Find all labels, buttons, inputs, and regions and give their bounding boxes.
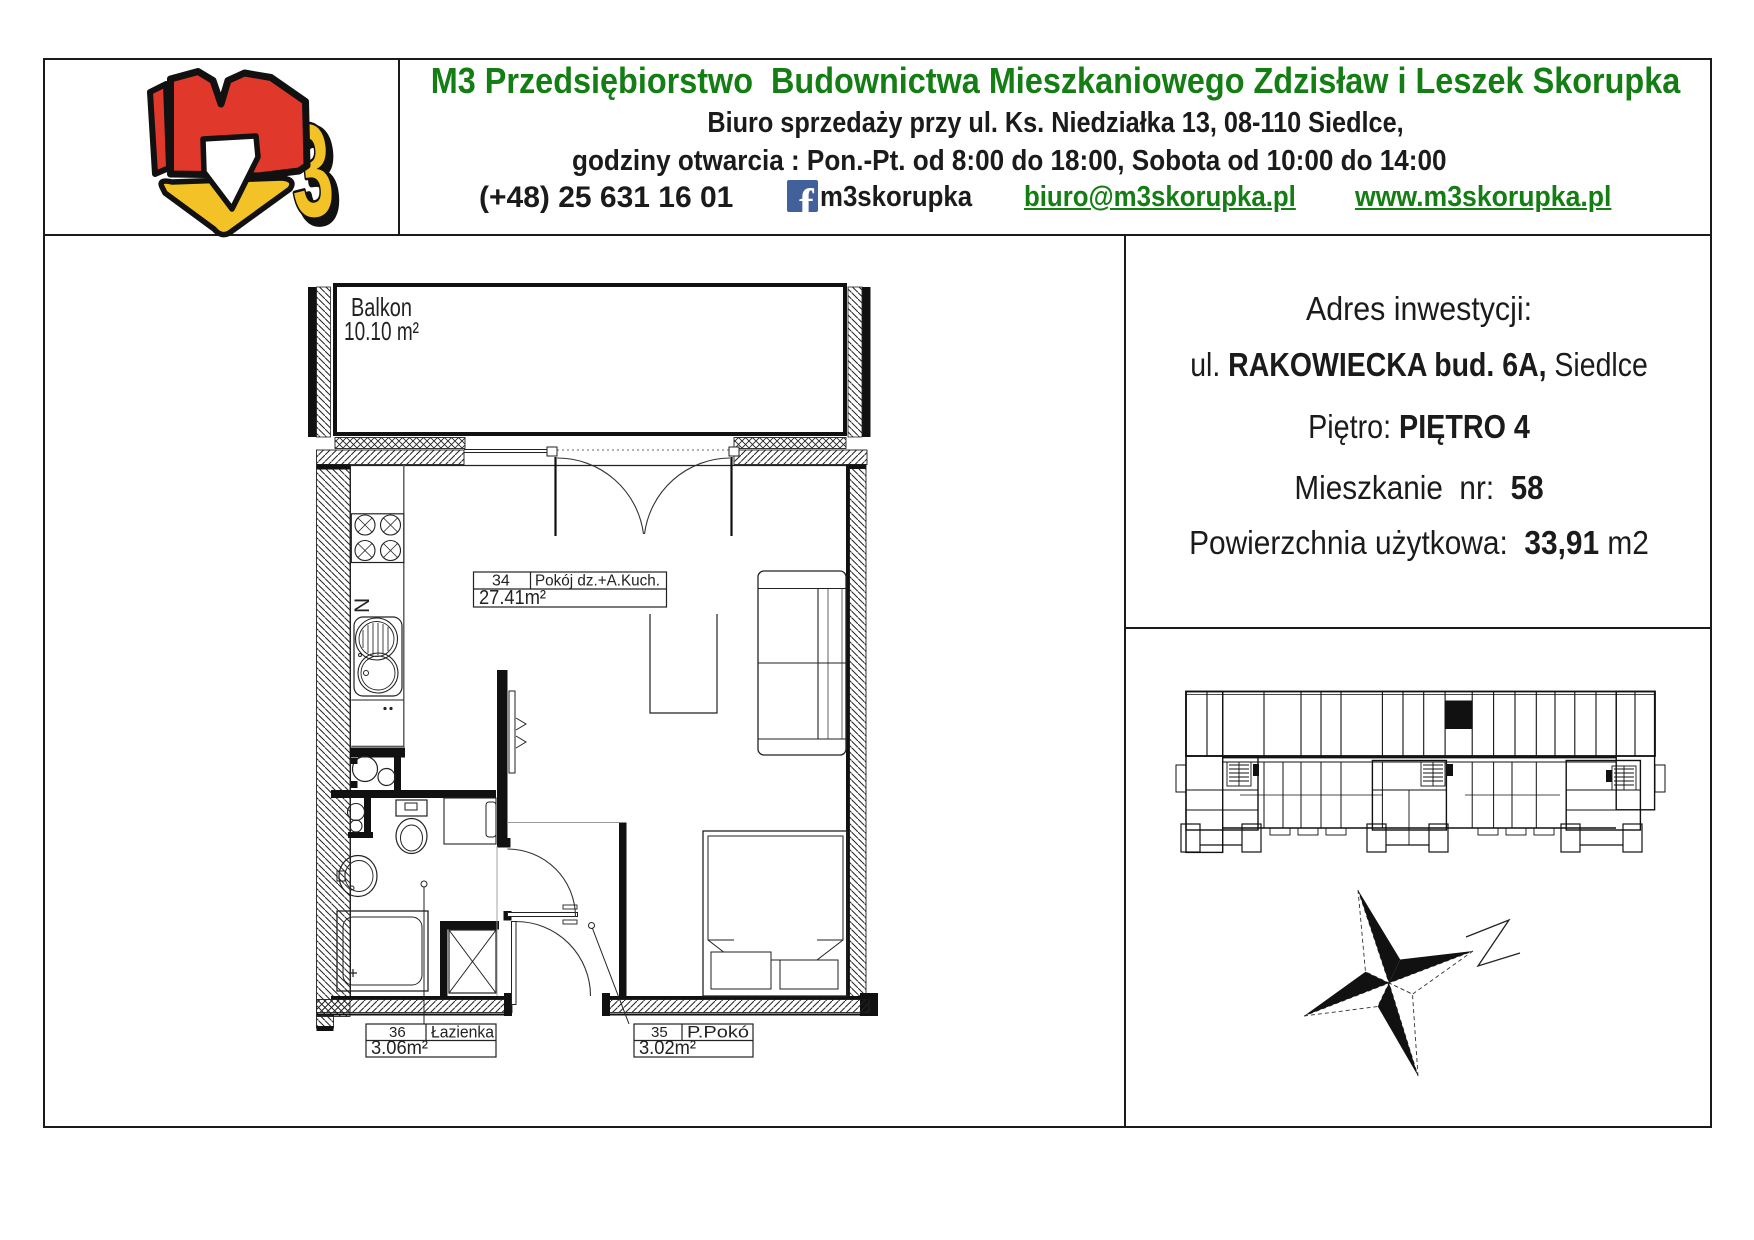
svg-text:3.06m²: 3.06m²: [371, 1038, 428, 1059]
svg-text:27.41m²: 27.41m²: [479, 587, 546, 609]
svg-text:Łazienka: Łazienka: [431, 1024, 495, 1042]
svg-text:Pokój dz.+A.Kuch.: Pokój dz.+A.Kuch.: [535, 573, 660, 590]
svg-text:N: N: [351, 598, 374, 613]
svg-text:10.10 m²: 10.10 m²: [344, 316, 419, 346]
svg-text:3.02m²: 3.02m²: [639, 1038, 696, 1059]
svg-text:P.Pokó: P.Pokó: [687, 1024, 749, 1042]
